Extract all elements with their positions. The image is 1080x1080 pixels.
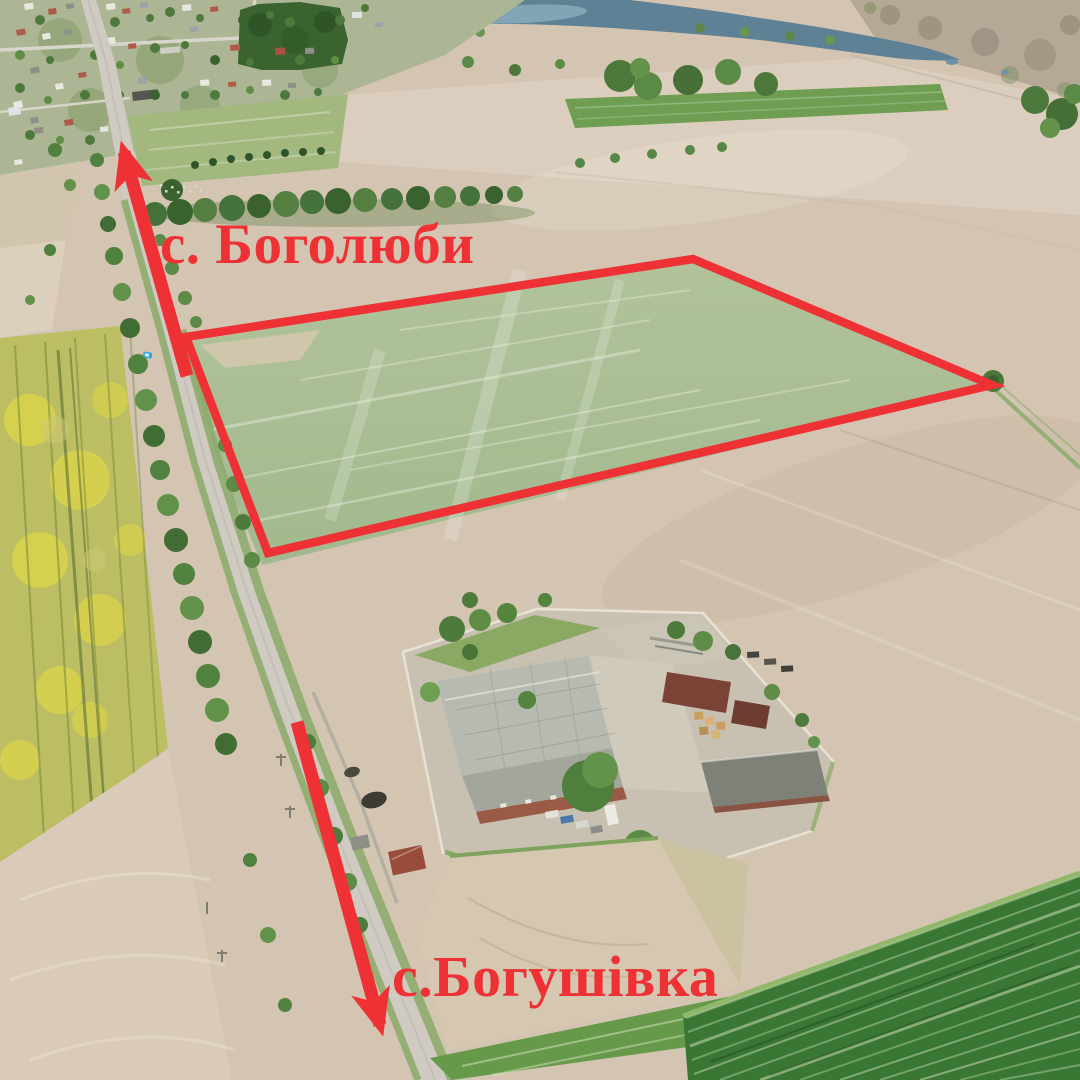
- label-bohushivka: с.Богушівка: [392, 944, 718, 1009]
- aerial-photo-canvas: с. Боголюби с.Богушівка: [0, 0, 1080, 1080]
- label-boholiuby: с. Боголюби: [160, 213, 475, 276]
- annotated-aerial-photo: с. Боголюби с.Богушівка: [0, 0, 1080, 1080]
